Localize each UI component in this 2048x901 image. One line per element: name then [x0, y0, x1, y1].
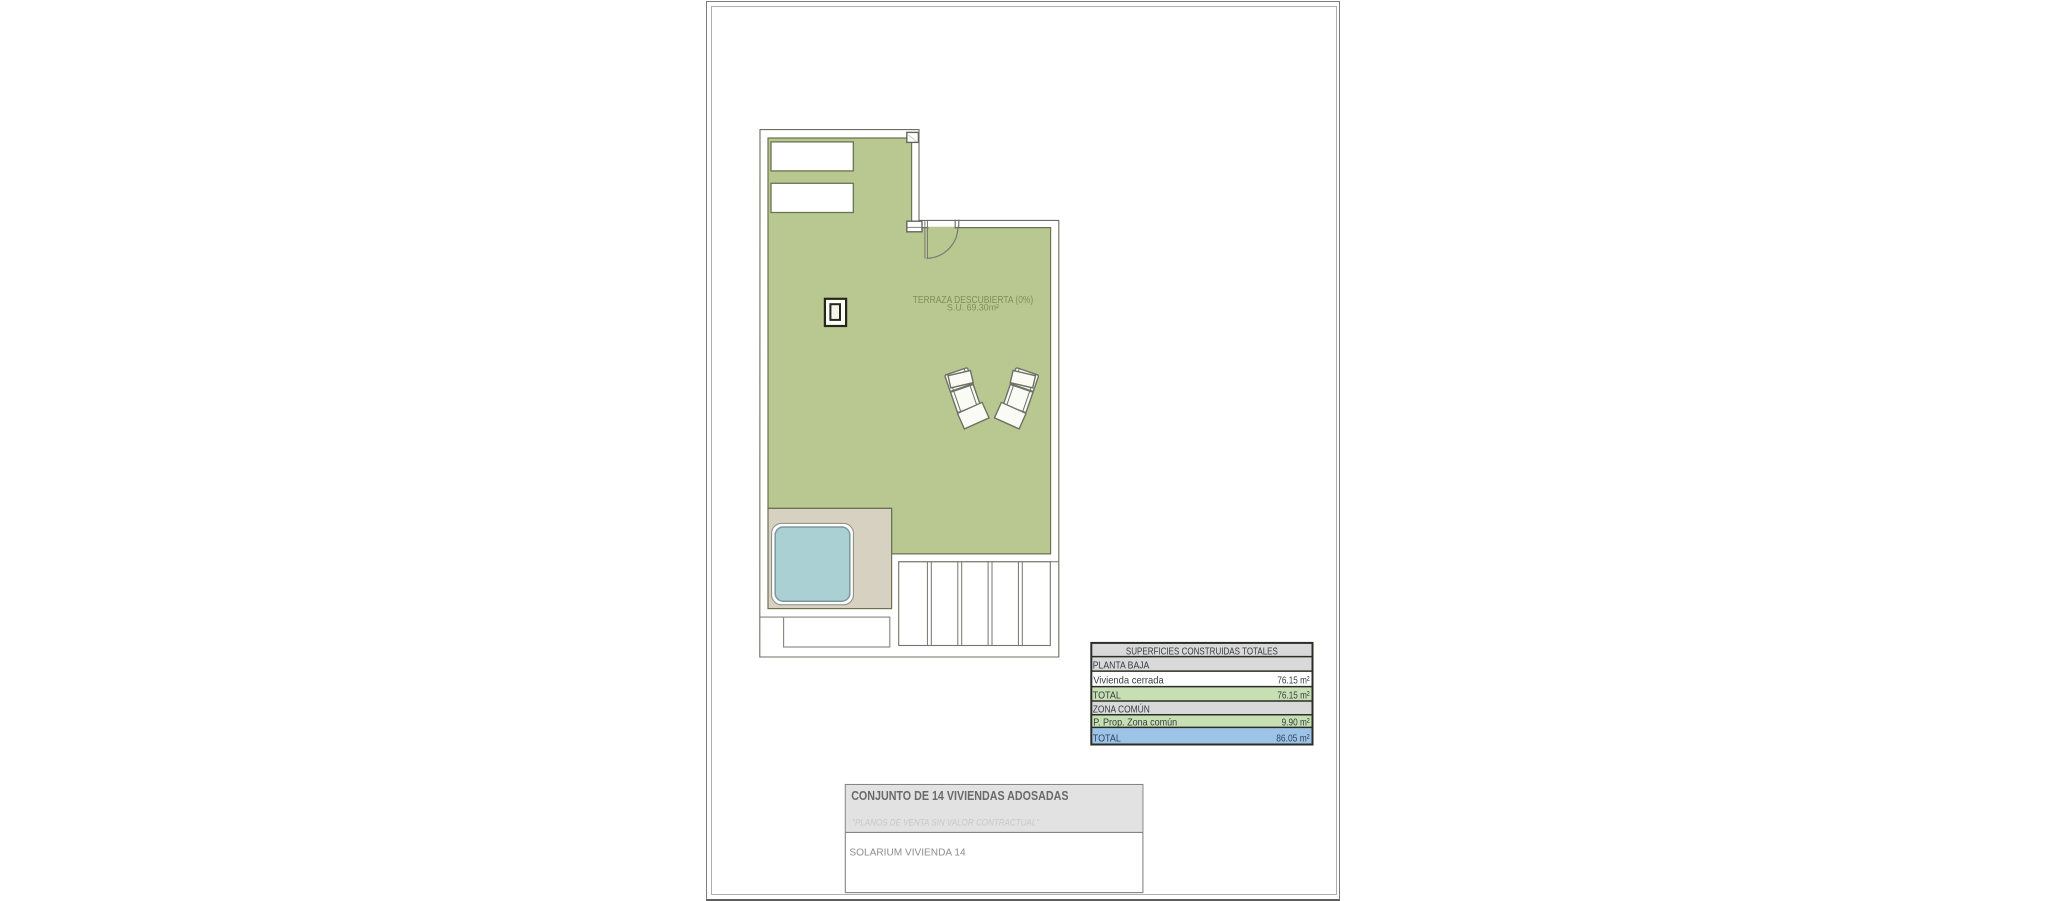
svg-text:TOTAL: TOTAL	[1093, 734, 1121, 745]
svg-text:S.U. 69.30m²: S.U. 69.30m²	[947, 302, 999, 312]
svg-text:P. Prop. Zona común: P. Prop. Zona común	[1093, 718, 1177, 729]
svg-text:Vivienda cerrada: Vivienda cerrada	[1093, 676, 1164, 687]
svg-text:ZONA COMÚN: ZONA COMÚN	[1093, 703, 1150, 716]
svg-text:SOLARIUM VIVIENDA 14: SOLARIUM VIVIENDA 14	[849, 847, 966, 858]
svg-text:"PLANOS DE VENTA SIN VALOR CON: "PLANOS DE VENTA SIN VALOR CONTRACTUAL"	[852, 818, 1040, 828]
svg-text:TOTAL: TOTAL	[1093, 691, 1121, 702]
svg-text:9.90 m²: 9.90 m²	[1282, 718, 1310, 729]
svg-text:76.15 m²: 76.15 m²	[1277, 691, 1310, 702]
svg-text:CONJUNTO DE 14 VIVIENDAS ADOSA: CONJUNTO DE 14 VIVIENDAS ADOSADAS	[851, 788, 1069, 803]
svg-text:PLANTA BAJA: PLANTA BAJA	[1093, 660, 1150, 671]
svg-text:86.05 m²: 86.05 m²	[1276, 734, 1310, 745]
svg-text:76.15 m²: 76.15 m²	[1277, 676, 1310, 687]
svg-text:SUPERFICIES CONSTRUIDAS TOTALE: SUPERFICIES CONSTRUIDAS TOTALES	[1126, 647, 1278, 658]
